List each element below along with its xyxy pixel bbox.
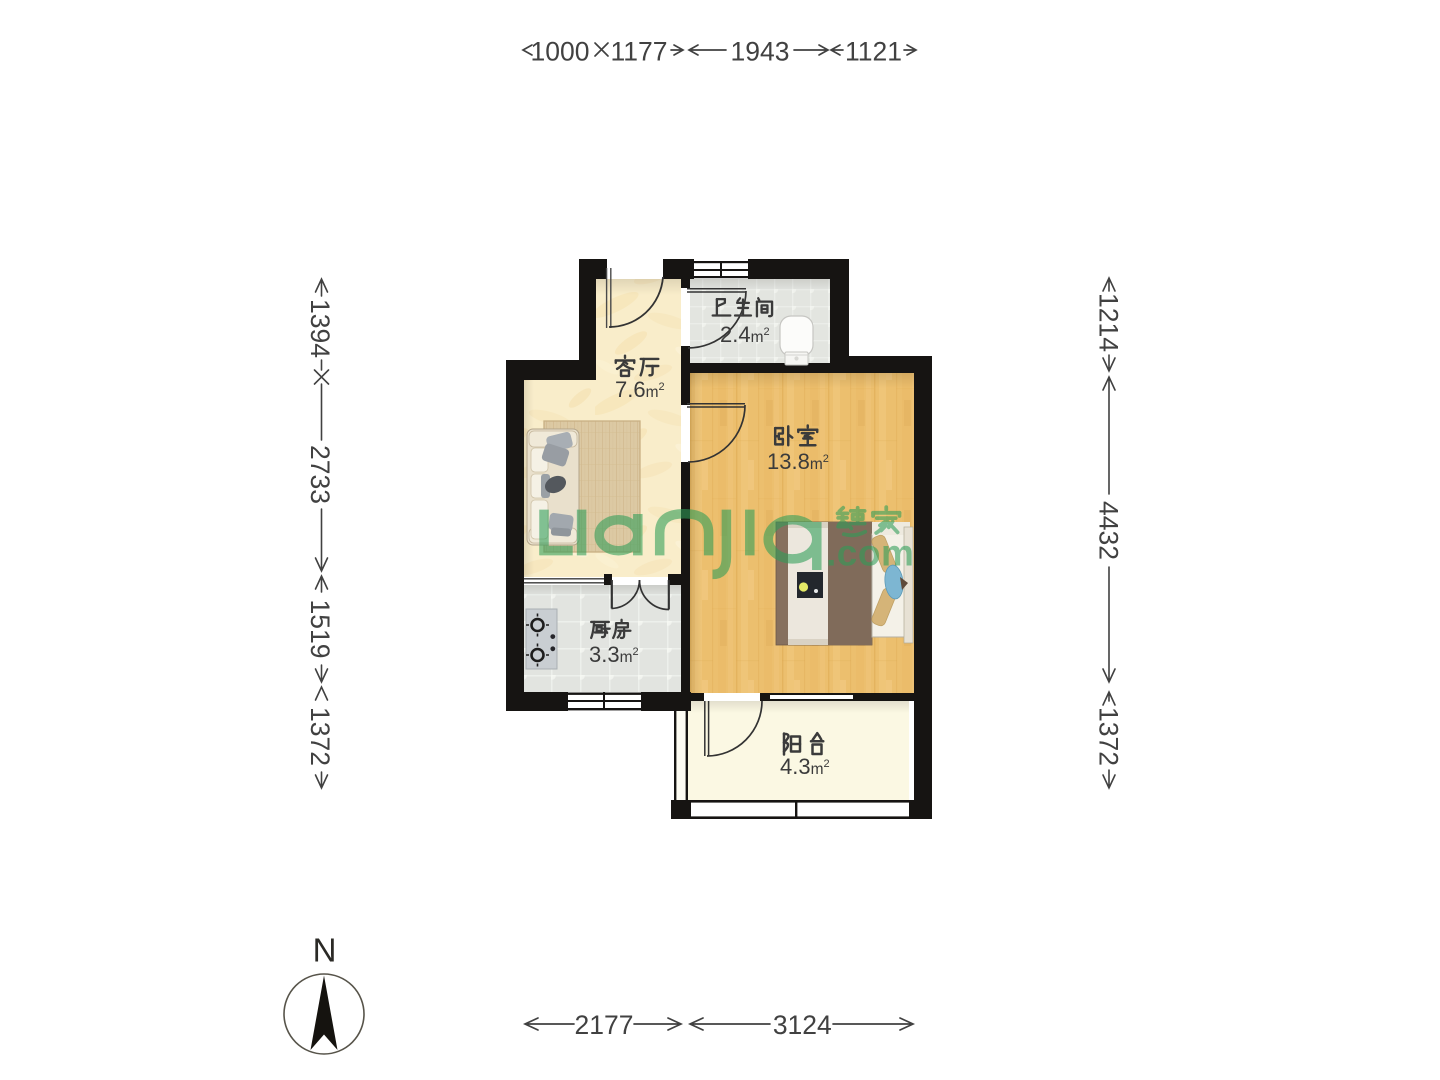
- svg-text:1943: 1943: [731, 37, 790, 67]
- svg-text:N: N: [313, 932, 337, 969]
- svg-text:1372: 1372: [305, 707, 335, 766]
- svg-text:2177: 2177: [575, 1010, 634, 1040]
- svg-text:1121: 1121: [845, 37, 902, 67]
- svg-text:2733: 2733: [305, 445, 335, 504]
- svg-text:4432: 4432: [1094, 501, 1124, 560]
- svg-text:1519: 1519: [305, 600, 335, 659]
- svg-text:1394: 1394: [305, 299, 335, 358]
- svg-text:1177: 1177: [611, 37, 668, 67]
- svg-text:.com: .com: [826, 533, 914, 574]
- svg-text:3124: 3124: [773, 1010, 832, 1040]
- svg-text:1372: 1372: [1094, 707, 1124, 766]
- svg-text:1000: 1000: [531, 37, 590, 67]
- svg-text:1214: 1214: [1094, 293, 1124, 352]
